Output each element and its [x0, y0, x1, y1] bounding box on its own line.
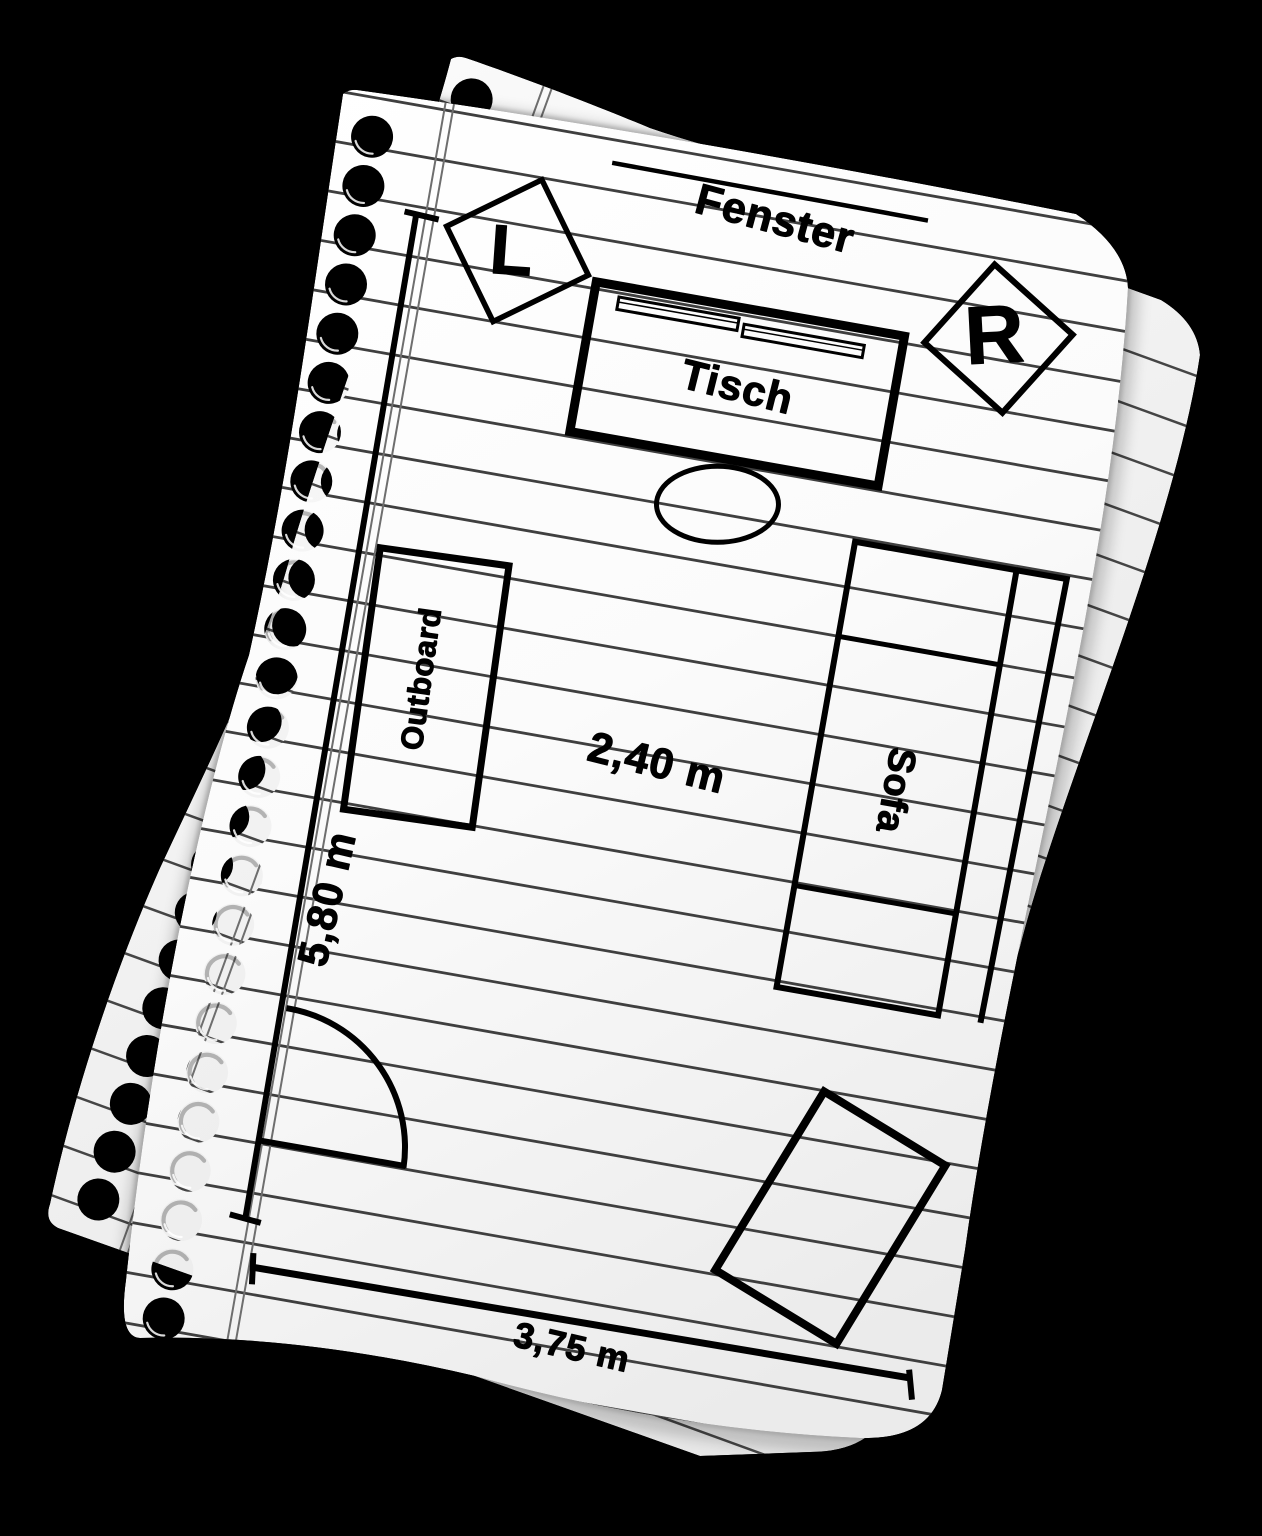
svg-text:R: R — [962, 288, 1026, 382]
svg-text:L: L — [487, 210, 535, 291]
